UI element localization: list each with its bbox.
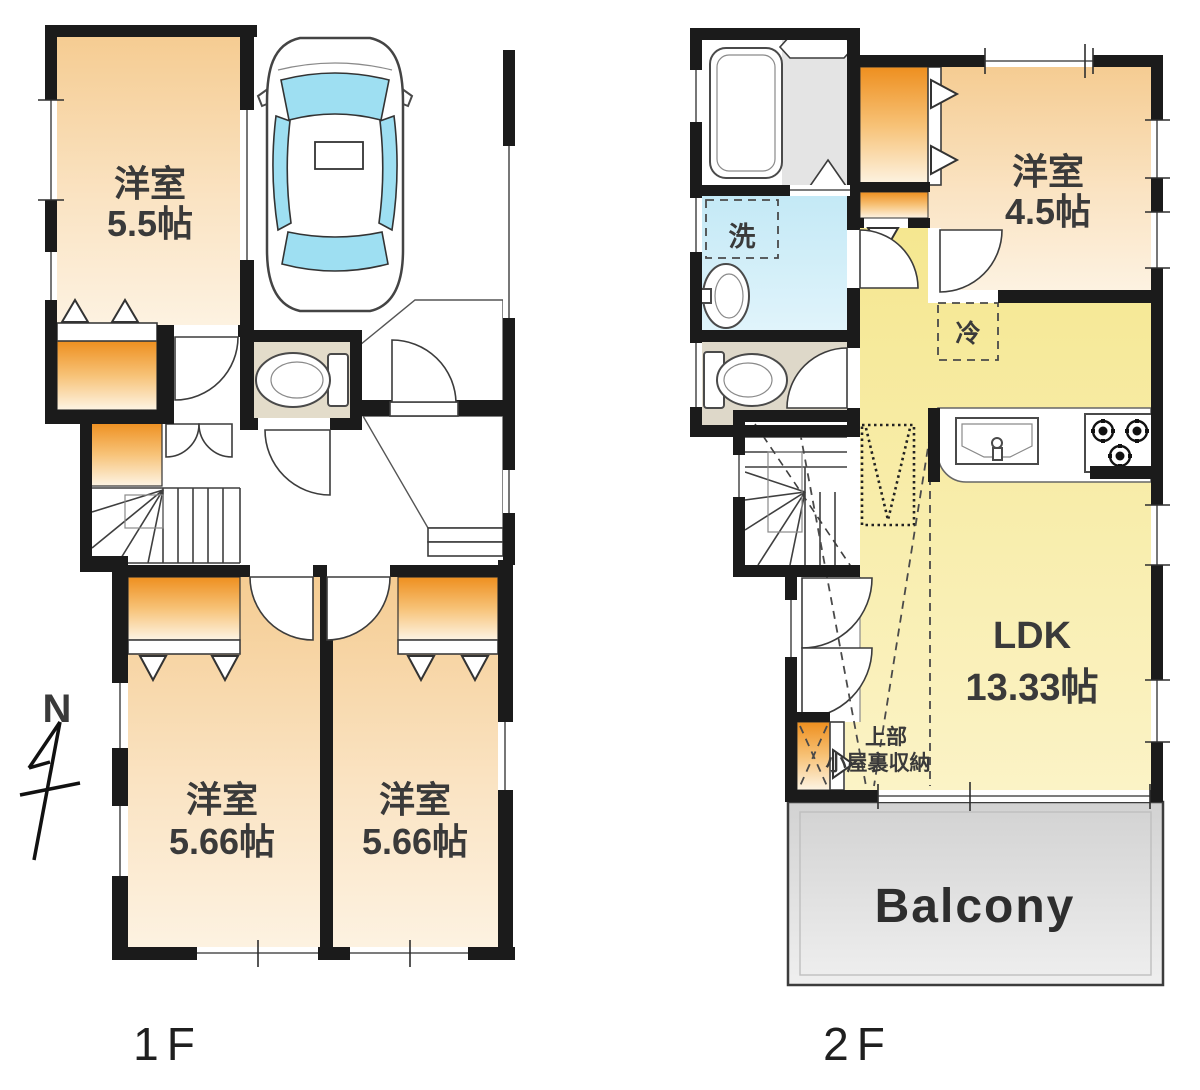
closet-door-arc <box>199 424 232 457</box>
balcony-label: Balcony <box>875 880 1076 933</box>
door-arc-bedroom-a <box>175 337 238 400</box>
north-arrow: N <box>20 687 80 860</box>
washer-label: 洗 <box>729 222 756 252</box>
floorplan-canvas: 洋室 5.5帖 洋室 5.66帖 洋室 5.66帖 1F N <box>0 0 1200 1090</box>
floorplan-page: 洋室 5.5帖 洋室 5.66帖 洋室 5.66帖 1F N <box>0 0 1200 1090</box>
room-label: 洋室 <box>114 163 186 204</box>
room-label: 洋室 <box>379 779 451 820</box>
room-size-label: 4.5帖 <box>1005 191 1091 232</box>
entrance-threshold <box>390 402 458 416</box>
floor-label-2f: 2F <box>823 1018 893 1070</box>
floor-label-1f: 1F <box>133 1018 203 1070</box>
floor-1f: 洋室 5.5帖 洋室 5.66帖 洋室 5.66帖 1F <box>38 25 515 1070</box>
closet-2f-a <box>860 67 928 185</box>
closet-1f-c-shelf <box>128 640 240 654</box>
floor-2f: 洋室 4.5帖 LDK 13.33帖 洗 冷 上部 小屋裏収納 Balcony … <box>690 28 1170 1070</box>
fridge-label: 冷 <box>955 319 980 348</box>
toilet-icon-1f <box>256 353 348 407</box>
room-label: 洋室 <box>186 779 258 820</box>
toilet-icon-2f <box>704 352 787 408</box>
closet-2f-b <box>860 192 928 218</box>
bathtub-icon <box>710 48 782 178</box>
bath-shower-floor <box>782 38 852 186</box>
room-size-label: 13.33帖 <box>965 667 1098 709</box>
room-label: LDK <box>993 615 1072 657</box>
closet-door-arc <box>166 424 199 457</box>
stairs-1f <box>92 488 240 563</box>
room-size-label: 5.66帖 <box>169 821 275 862</box>
door-arc-entrance <box>392 340 456 402</box>
genkan-tiles <box>363 416 503 528</box>
closet-1f-d-shelf <box>398 640 498 654</box>
closet-1f-c <box>128 577 240 640</box>
room-label: 洋室 <box>1012 151 1084 192</box>
genkan-step-upper <box>428 528 503 542</box>
closet-1f-a <box>57 341 157 410</box>
genkan-step-lower <box>428 542 503 556</box>
room-size-label: 5.5帖 <box>107 203 193 244</box>
stove-icon <box>1085 414 1153 472</box>
closet-1f-a-shelf <box>57 323 157 341</box>
closet-1f-b <box>90 422 162 486</box>
closet-1f-d <box>398 577 498 640</box>
door-arc-toilet-1f <box>265 430 330 495</box>
room-size-label: 5.66帖 <box>362 821 468 862</box>
attic-label-line2: 小屋裏収納 <box>826 751 931 775</box>
car-icon <box>258 38 412 311</box>
attic-label-line1: 上部 <box>865 725 907 749</box>
